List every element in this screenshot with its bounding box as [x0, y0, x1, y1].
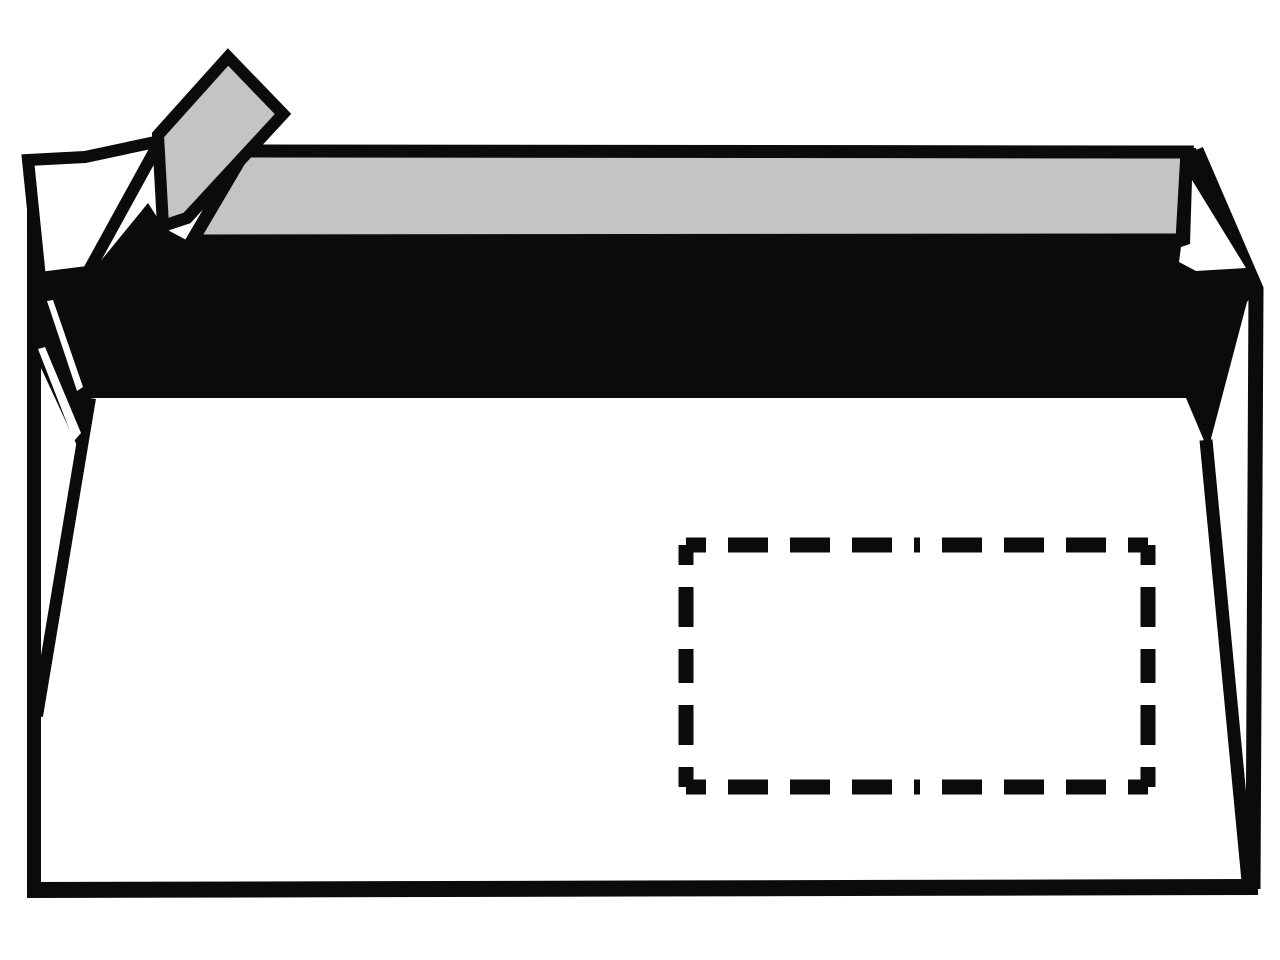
- envelope-illustration: [0, 0, 1280, 960]
- envelope-svg: [0, 0, 1280, 960]
- body-right-fold: [1206, 440, 1248, 881]
- adhesive-strip: [192, 151, 1187, 241]
- bottom-edge: [27, 887, 1258, 890]
- body-left-fold: [37, 398, 90, 716]
